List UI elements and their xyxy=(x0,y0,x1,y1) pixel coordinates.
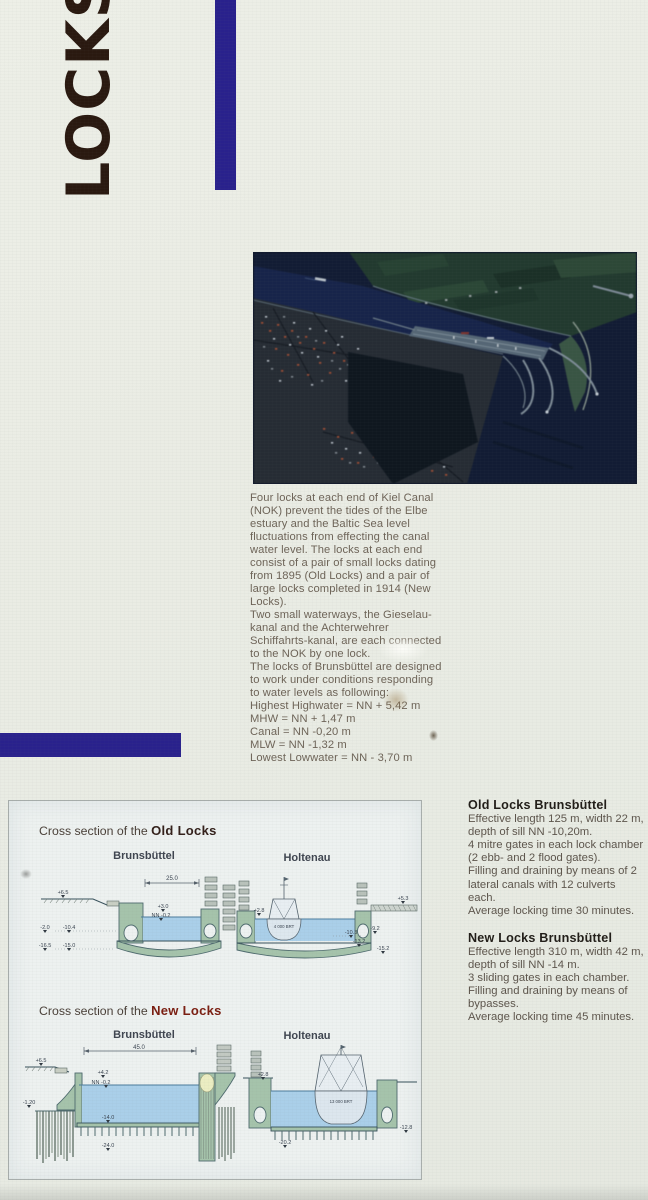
new-ship: 13 000 BRT xyxy=(315,1045,367,1124)
new-locks-heading: New Locks Brunsbüttel xyxy=(468,932,646,945)
new-brunsbuettel-label: Brunsbüttel xyxy=(104,1029,184,1041)
old-holtenau-section: 4 000 BRT +2.8 +5.3 xyxy=(237,877,417,958)
intro-text: Four locks at each end of Kiel Canal(NOK… xyxy=(250,492,452,765)
poster-title-area: LOCKS xyxy=(129,14,211,200)
new-bb-dim-label: 45.0 xyxy=(133,1045,145,1051)
photo-haze xyxy=(253,252,637,484)
old-bb-gate-tower xyxy=(205,877,217,906)
aerial-photo-kiel-canal-locks xyxy=(253,252,637,484)
old-ship-label: 4 000 BRT xyxy=(274,924,295,929)
old-locks-facts: Old Locks Brunsbüttel Effective length 1… xyxy=(468,799,646,918)
intro-paragraph: Four locks at each end of Kiel Canal(NOK… xyxy=(250,492,452,700)
new-bb-gate-tower xyxy=(217,1045,231,1071)
old-locks-diagram-title: Cross section of the Old Locks xyxy=(39,823,217,838)
new-holtenau-section: 13 000 BRT +2.8 -20.2 -12.8 xyxy=(243,1045,417,1148)
new-brunsbuettel-section: 45.0 xyxy=(23,1045,235,1163)
poster-title: LOCKS xyxy=(49,0,129,200)
poster-bottom-edge xyxy=(0,1184,648,1200)
cross-section-panel: Cross section of the Old Locks Brunsbütt… xyxy=(8,800,422,1180)
new-locks-lines: Effective length 310 m, width 42 m,depth… xyxy=(468,946,646,1025)
new-holtenau-label: Holtenau xyxy=(267,1030,347,1042)
lock-facts-column: Old Locks Brunsbüttel Effective length 1… xyxy=(468,799,646,1025)
new-ship-label: 13 000 BRT xyxy=(330,1099,353,1104)
old-locks-cross-section: 25.0 +6.5 +3.0 NN -0.2 -2.0 -10.4 -16.5 … xyxy=(11,865,419,983)
aerial-photo-illustration xyxy=(253,252,637,484)
old-holtenau-label: Holtenau xyxy=(267,852,347,864)
old-divider-gate-column xyxy=(223,885,235,930)
new-bb-right-piles xyxy=(219,1107,234,1161)
old-brunsbuettel-label: Brunsbüttel xyxy=(104,850,184,862)
new-title-bold: New Locks xyxy=(151,1003,222,1018)
new-bb-pile-field xyxy=(35,1111,75,1163)
accent-bar-horizontal xyxy=(0,733,181,757)
new-ho-floor-piles xyxy=(275,1131,373,1140)
old-title-bold: Old Locks xyxy=(151,823,217,838)
old-title-prefix: Cross section of the xyxy=(39,824,151,838)
new-locks-facts: New Locks Brunsbüttel Effective length 3… xyxy=(468,932,646,1025)
old-bb-dimension: 25.0 xyxy=(145,876,199,887)
new-locks-diagram-title: Cross section of the New Locks xyxy=(39,1003,222,1018)
old-brunsbuettel-section: 25.0 +6.5 +3.0 NN -0.2 -2.0 -10.4 -16.5 … xyxy=(39,876,221,957)
old-ship: 4 000 BRT xyxy=(267,877,301,940)
old-ho-jetty xyxy=(371,905,417,911)
old-locks-lines: Effective length 125 m, width 22 m,depth… xyxy=(468,813,646,918)
title-accent-bar-vertical xyxy=(215,0,236,190)
new-bb-floor-piles xyxy=(81,1127,200,1136)
new-locks-cross-section: 45.0 xyxy=(11,1043,419,1175)
new-title-prefix: Cross section of the xyxy=(39,1004,151,1018)
old-bb-dim-label: 25.0 xyxy=(166,876,178,882)
new-bb-dimension: 45.0 xyxy=(84,1045,196,1055)
locks-information-poster: LOCKS xyxy=(0,0,648,1200)
old-locks-heading: Old Locks Brunsbüttel xyxy=(468,799,646,812)
water-level-list: Highest Highwater = NN + 5,42 mMHW = NN … xyxy=(250,700,452,765)
